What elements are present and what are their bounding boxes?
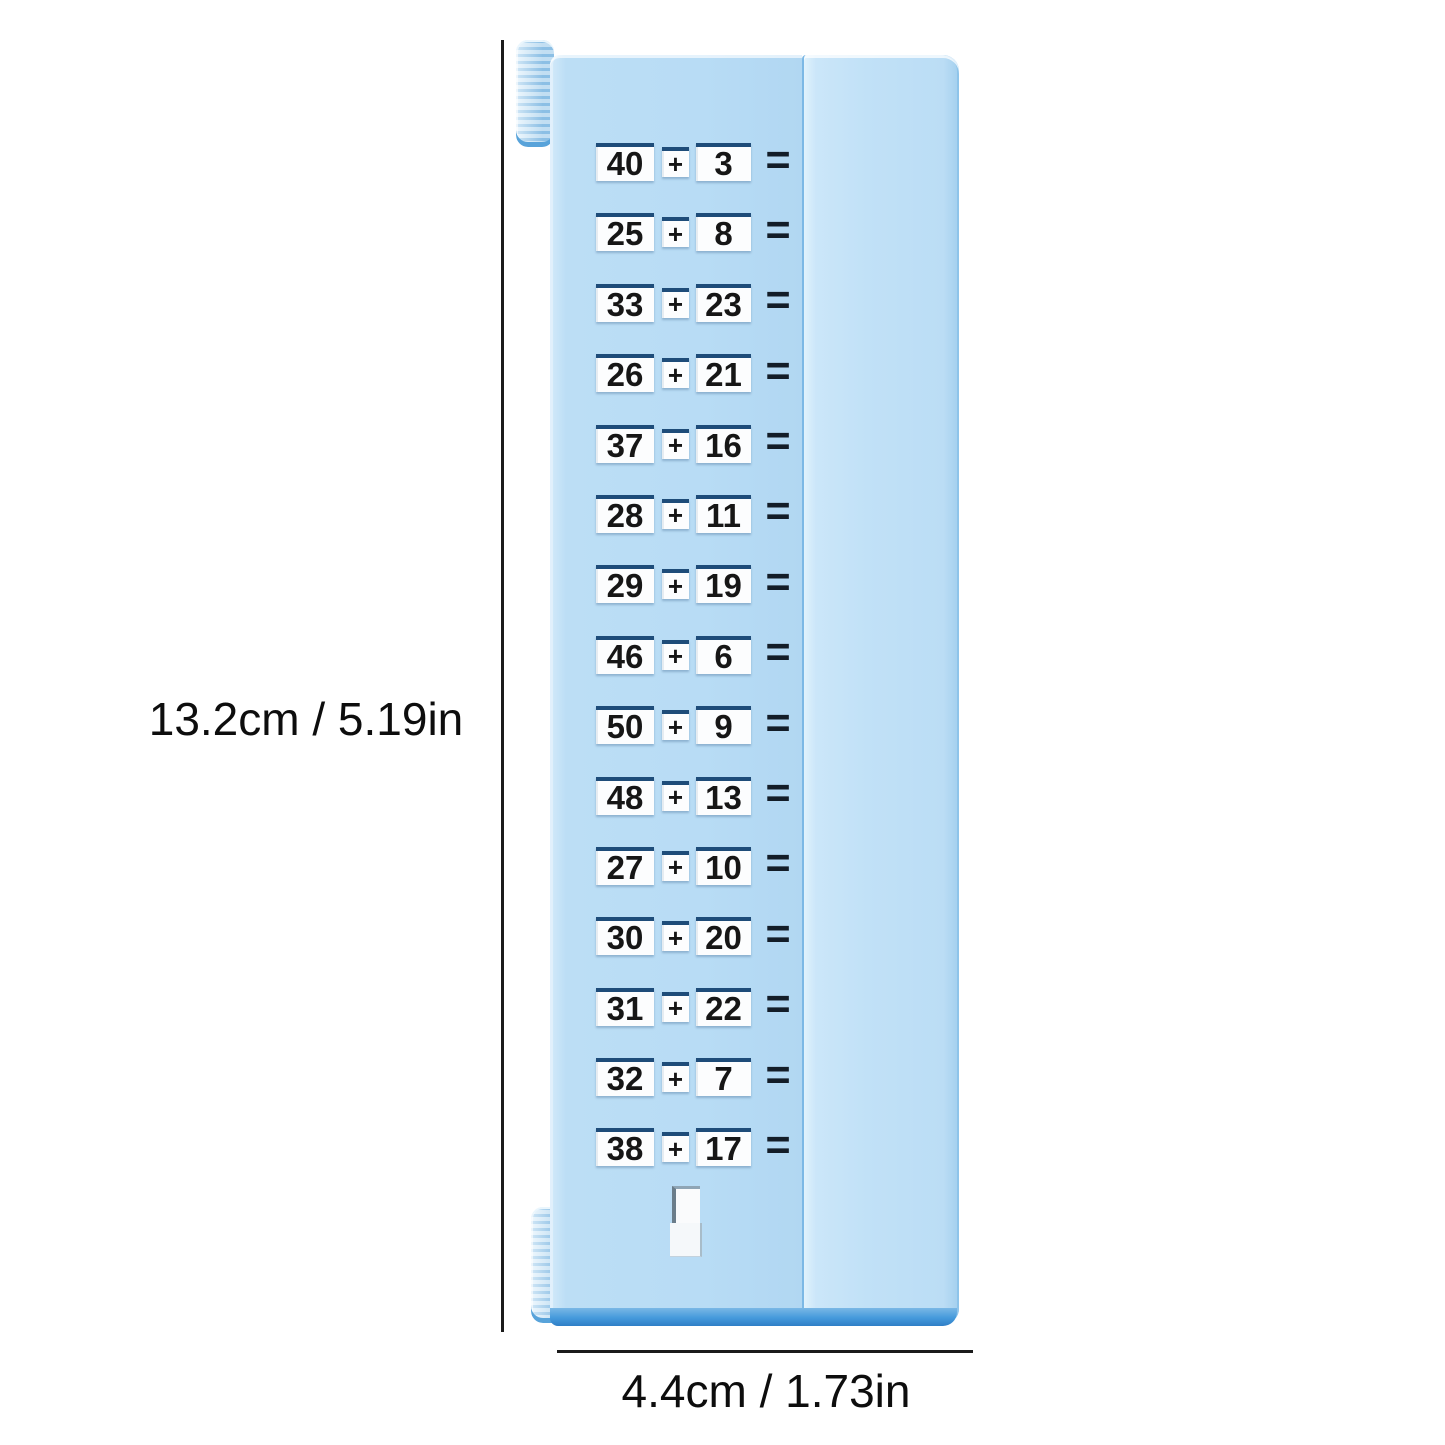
- equation-row: 25 + 8 =: [596, 213, 808, 251]
- answer-slider-tab: [670, 1186, 702, 1256]
- addend-b-tile: 17: [696, 1128, 751, 1166]
- width-dimension-line: [557, 1350, 973, 1353]
- height-dimension-line: [501, 40, 504, 1332]
- addend-b-tile: 6: [696, 636, 751, 674]
- equation-row: 50 + 9 =: [596, 706, 808, 744]
- addend-b-tile: 19: [696, 565, 751, 603]
- addend-b-tile: 9: [696, 706, 751, 744]
- product-image: 13.2cm / 5.19in 4.4cm / 1.73in 40 + 3 = …: [0, 0, 1445, 1445]
- side-cover-panel: [802, 55, 959, 1323]
- plus-sign-tile: +: [662, 710, 689, 740]
- equation-row: 26 + 21 =: [596, 354, 808, 392]
- plus-sign-tile: +: [662, 1132, 689, 1162]
- top-dial-knob: [516, 40, 554, 147]
- equals-sign: =: [757, 491, 799, 533]
- equals-sign: =: [757, 139, 799, 181]
- equals-sign: =: [757, 632, 799, 674]
- base-edge-strip: [550, 1308, 957, 1326]
- addend-a-tile: 33: [596, 284, 654, 322]
- plus-sign-tile: +: [662, 851, 689, 881]
- addend-a-tile: 37: [596, 425, 654, 463]
- equation-row: 28 + 11 =: [596, 495, 808, 533]
- plus-sign-tile: +: [662, 499, 689, 529]
- addend-b-tile: 20: [696, 917, 751, 955]
- addend-a-tile: 38: [596, 1128, 654, 1166]
- addend-b-tile: 8: [696, 213, 751, 251]
- equation-row: 48 + 13 =: [596, 777, 808, 815]
- equation-row: 38 + 17 =: [596, 1128, 808, 1166]
- plus-sign-tile: +: [662, 781, 689, 811]
- addend-a-tile: 30: [596, 917, 654, 955]
- equals-sign: =: [757, 209, 799, 251]
- plus-sign-tile: +: [662, 288, 689, 318]
- equation-row: 37 + 16 =: [596, 425, 808, 463]
- equals-sign: =: [757, 913, 799, 955]
- equation-row: 30 + 20 =: [596, 917, 808, 955]
- addend-a-tile: 46: [596, 636, 654, 674]
- addend-b-tile: 11: [696, 495, 751, 533]
- addend-b-tile: 21: [696, 354, 751, 392]
- addend-b-tile: 13: [696, 777, 751, 815]
- equals-sign: =: [757, 1054, 799, 1096]
- plus-sign-tile: +: [662, 921, 689, 951]
- addend-b-tile: 16: [696, 425, 751, 463]
- plus-sign-tile: +: [662, 640, 689, 670]
- addend-a-tile: 32: [596, 1058, 654, 1096]
- height-dimension-label: 13.2cm / 5.19in: [110, 694, 502, 745]
- plus-sign-tile: +: [662, 429, 689, 459]
- equation-row: 27 + 10 =: [596, 847, 808, 885]
- equals-sign: =: [757, 1124, 799, 1166]
- plus-sign-tile: +: [662, 992, 689, 1022]
- equals-sign: =: [757, 280, 799, 322]
- equation-row: 40 + 3 =: [596, 143, 808, 181]
- addend-b-tile: 3: [696, 143, 751, 181]
- plus-sign-tile: +: [662, 569, 689, 599]
- plus-sign-tile: +: [662, 217, 689, 247]
- equation-row: 29 + 19 =: [596, 565, 808, 603]
- addend-a-tile: 50: [596, 706, 654, 744]
- slider-tab-upper: [672, 1186, 700, 1223]
- addend-a-tile: 48: [596, 777, 654, 815]
- addend-a-tile: 25: [596, 213, 654, 251]
- slider-tab-lower: [670, 1223, 702, 1257]
- equals-sign: =: [757, 561, 799, 603]
- equals-sign: =: [757, 702, 799, 744]
- addend-a-tile: 28: [596, 495, 654, 533]
- addend-b-tile: 7: [696, 1058, 751, 1096]
- addend-a-tile: 26: [596, 354, 654, 392]
- addend-a-tile: 27: [596, 847, 654, 885]
- equation-row: 33 + 23 =: [596, 284, 808, 322]
- plus-sign-tile: +: [662, 358, 689, 388]
- width-dimension-label: 4.4cm / 1.73in: [560, 1366, 972, 1417]
- plus-sign-tile: +: [662, 1062, 689, 1092]
- equation-row: 46 + 6 =: [596, 636, 808, 674]
- equals-sign: =: [757, 350, 799, 392]
- equals-sign: =: [757, 984, 799, 1026]
- equals-sign: =: [757, 421, 799, 463]
- addend-b-tile: 10: [696, 847, 751, 885]
- equals-sign: =: [757, 773, 799, 815]
- equals-sign: =: [757, 843, 799, 885]
- addition-slide-board: 40 + 3 = 25 + 8 = 33 + 23 = 26 + 21 = 37…: [550, 55, 957, 1323]
- addend-a-tile: 31: [596, 988, 654, 1026]
- addend-a-tile: 29: [596, 565, 654, 603]
- plus-sign-tile: +: [662, 147, 689, 177]
- equation-rows: 40 + 3 = 25 + 8 = 33 + 23 = 26 + 21 = 37…: [596, 143, 808, 1199]
- equation-row: 31 + 22 =: [596, 988, 808, 1026]
- addend-b-tile: 22: [696, 988, 751, 1026]
- addend-a-tile: 40: [596, 143, 654, 181]
- addend-b-tile: 23: [696, 284, 751, 322]
- equation-row: 32 + 7 =: [596, 1058, 808, 1096]
